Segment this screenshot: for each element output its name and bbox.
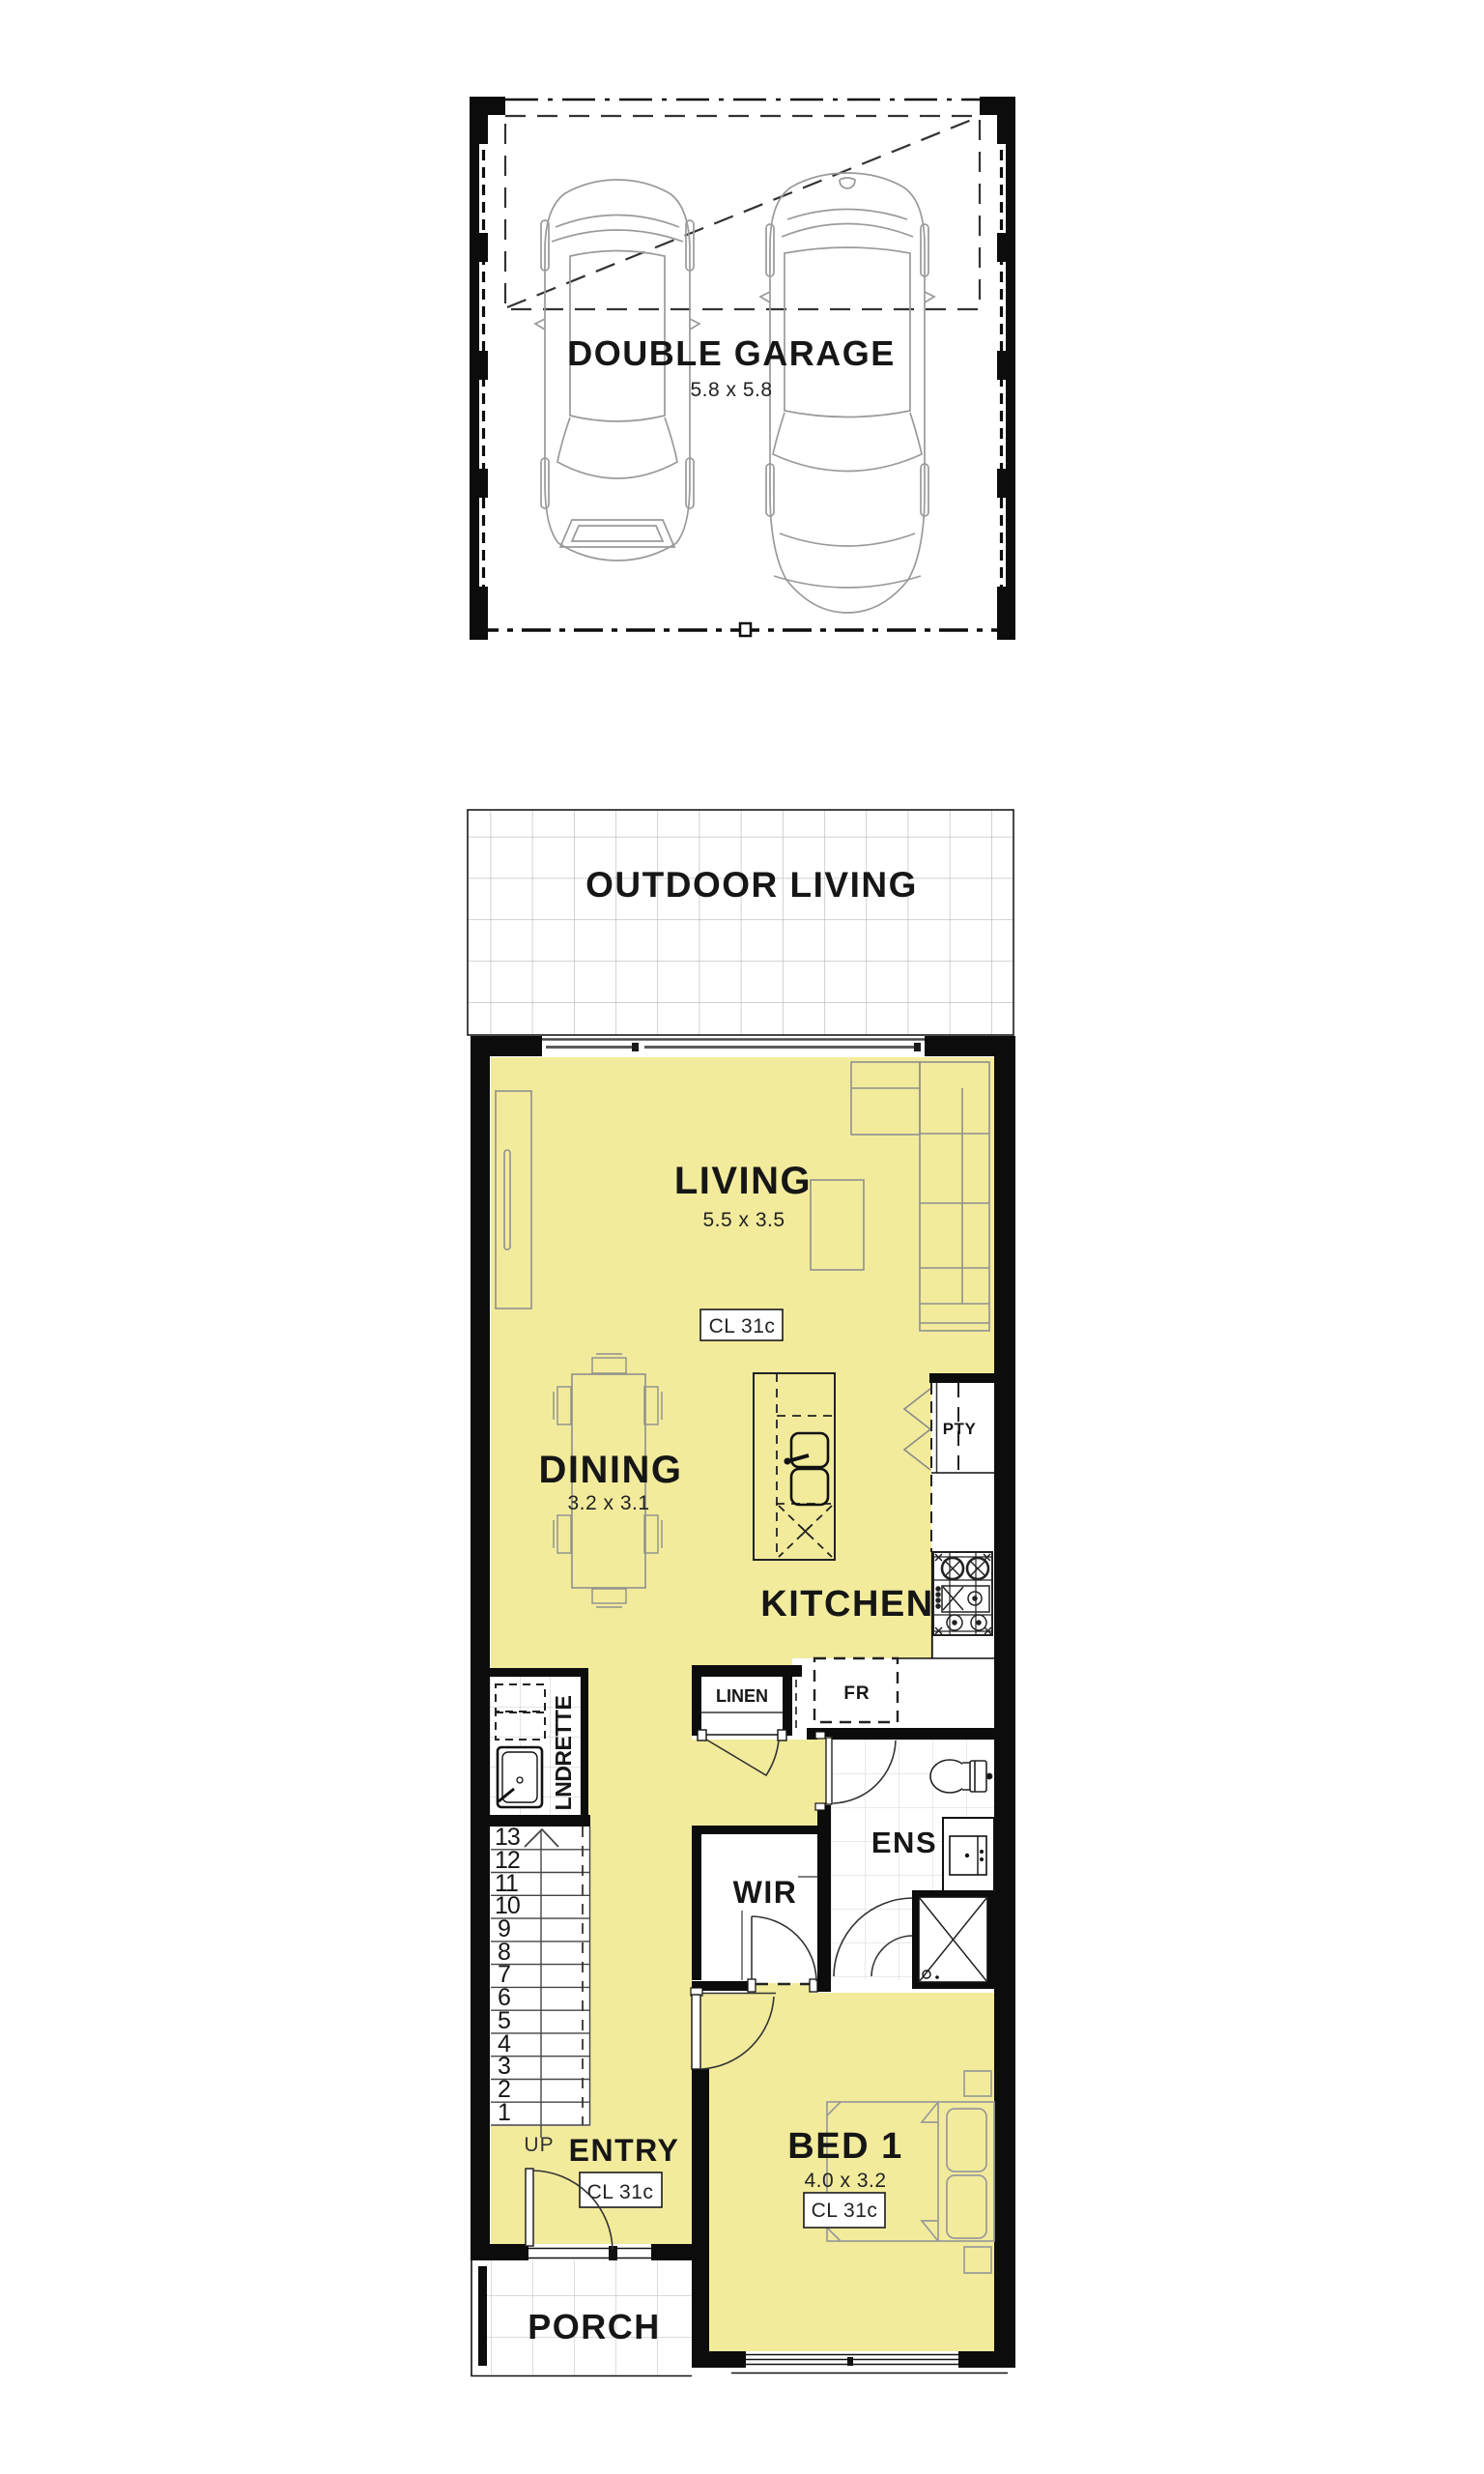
svg-text:ENTRY: ENTRY — [569, 2133, 680, 2168]
svg-text:1: 1 — [498, 2099, 510, 2126]
svg-text:UP: UP — [524, 2134, 554, 2156]
svg-text:PORCH: PORCH — [528, 2307, 661, 2346]
svg-text:ENS: ENS — [871, 1826, 937, 1859]
svg-text:LIVING: LIVING — [674, 1160, 812, 1202]
svg-text:CL 31c: CL 31c — [812, 2200, 878, 2222]
svg-text:DOUBLE GARAGE: DOUBLE GARAGE — [567, 333, 896, 373]
svg-text:KITCHEN: KITCHEN — [760, 1584, 933, 1625]
svg-text:CL 31c: CL 31c — [587, 2181, 654, 2203]
svg-text:LINEN: LINEN — [716, 1686, 768, 1706]
svg-text:OUTDOOR LIVING: OUTDOOR LIVING — [585, 865, 918, 905]
svg-text:5.8 x 5.8: 5.8 x 5.8 — [690, 379, 772, 401]
svg-text:5.5 x 3.5: 5.5 x 3.5 — [702, 1209, 785, 1231]
svg-text:WIR: WIR — [733, 1875, 798, 1910]
svg-text:DINING: DINING — [539, 1449, 683, 1491]
svg-text:LNDRETTE: LNDRETTE — [551, 1696, 576, 1811]
svg-text:FR: FR — [843, 1683, 870, 1704]
svg-text:3.2 x 3.1: 3.2 x 3.1 — [567, 1492, 649, 1514]
svg-text:BED 1: BED 1 — [787, 2126, 902, 2167]
svg-text:CL 31c: CL 31c — [709, 1315, 776, 1338]
svg-text:PTY: PTY — [943, 1420, 977, 1438]
svg-text:4.0 x 3.2: 4.0 x 3.2 — [804, 2170, 886, 2192]
